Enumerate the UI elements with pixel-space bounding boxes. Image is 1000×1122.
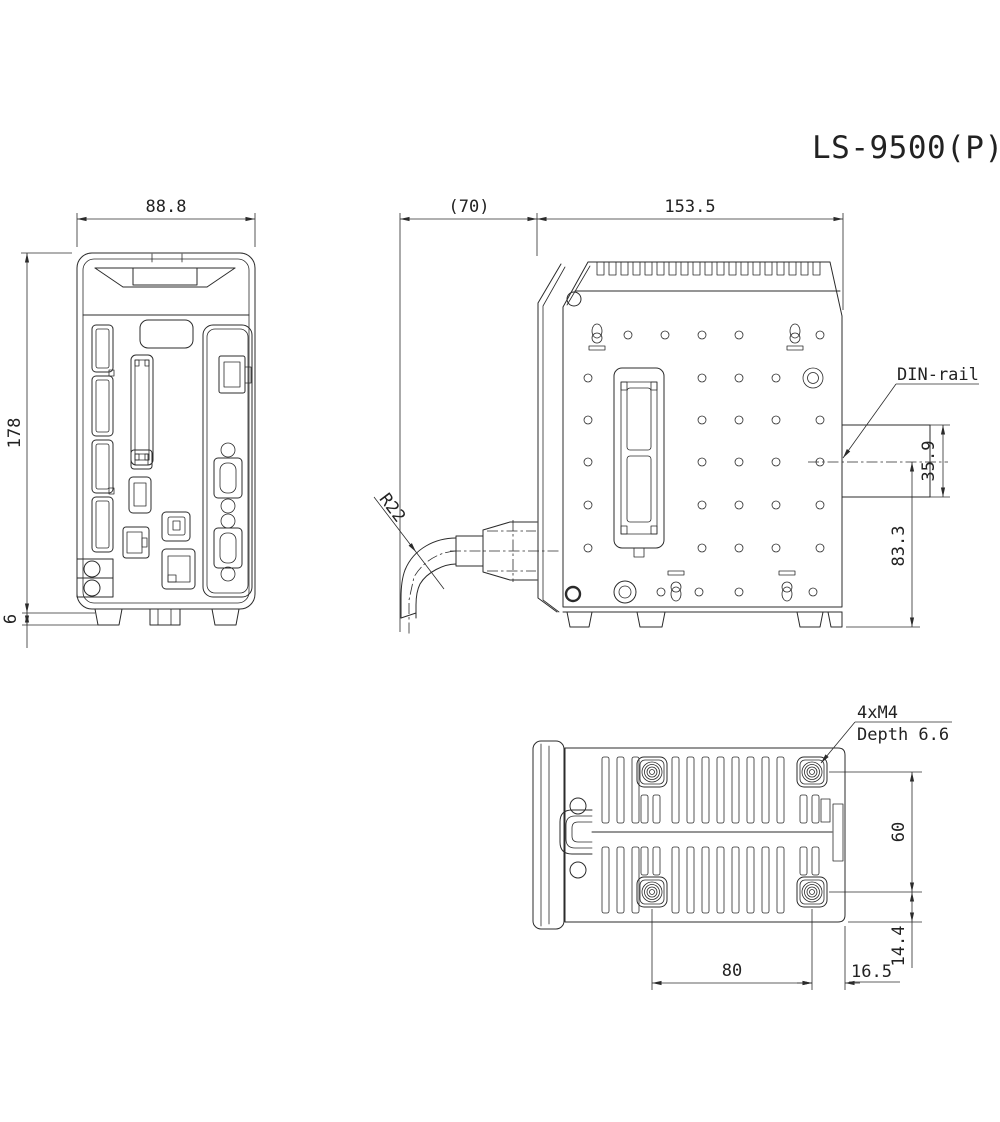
dim-front-width: 88.8 (146, 197, 187, 217)
dim-hole-to-bottom: 14.4 (889, 926, 909, 967)
front-expansion-slots (92, 325, 114, 552)
side-front-bezel (538, 264, 565, 612)
side-feet (563, 612, 842, 627)
connector-b (129, 477, 151, 513)
bottom-view: 4xM4 Depth 6.6 60 14.4 80 16.5 (533, 703, 952, 990)
mounting-hole (637, 757, 667, 787)
d-sub-connector-1 (214, 458, 242, 498)
dim-hole-span-vertical: 60 (889, 822, 909, 842)
side-screw-boss (614, 581, 636, 603)
label-din-rail: DIN-rail (897, 365, 979, 385)
front-view: 88.8 178 6 (1, 197, 255, 648)
dim-front-height: 178 (5, 418, 25, 449)
bottom-vent-slots (602, 757, 819, 913)
side-corner-hole-top-left (567, 292, 581, 306)
dim-hole-to-right: 16.5 (851, 962, 892, 982)
dim-din-center-to-bottom: 83.3 (889, 526, 909, 567)
front-body-outline (77, 253, 255, 609)
side-view: R22 DIN-rail (70) 153.5 35.9 83.3 (374, 197, 979, 636)
drawing-title: LS-9500(P) (812, 130, 1000, 166)
dim-foot-height: 6 (1, 614, 21, 624)
technical-drawing-page: LS-9500(P) (0, 0, 1000, 1122)
cable-radius-callout: R22 (374, 490, 444, 589)
front-body-inner-outline (83, 259, 249, 603)
mounting-hole-callout: 4xM4 Depth 6.6 (821, 703, 952, 763)
label-cable-bend-radius: R22 (375, 490, 409, 527)
dimension-drawing: LS-9500(P) (0, 0, 1000, 1122)
side-top-vents (575, 262, 840, 291)
side-vent-holes (584, 324, 824, 601)
cable-inner-curve (416, 564, 456, 618)
rj45-jack (219, 356, 245, 393)
label-hole-depth: Depth 6.6 (857, 725, 949, 745)
dim-din-rail-width: 35.9 (919, 441, 939, 482)
mounting-hole (797, 877, 827, 907)
front-terminal-block (77, 559, 113, 597)
front-center-connectors (123, 320, 195, 589)
d-sub-connector-2 (214, 528, 242, 568)
bottom-hole-left-1 (570, 798, 586, 814)
bottom-din-latch (560, 810, 832, 854)
side-corner-hole-bottom-left (566, 587, 580, 601)
dim-hole-span-horizontal: 80 (722, 961, 742, 981)
din-rail-callout: DIN-rail (843, 365, 979, 458)
main-connector (131, 355, 153, 465)
dim-cable-clearance: (70) (449, 197, 490, 217)
bottom-right-notch (821, 799, 830, 822)
cable-centerline (409, 551, 456, 636)
front-dimensions: 88.8 178 6 (1, 197, 255, 648)
vent-window (140, 320, 193, 348)
front-right-module (203, 325, 252, 597)
bottom-hole-left-2 (570, 862, 586, 878)
label-mounting-holes: 4xM4 (857, 703, 898, 723)
side-body-outline (563, 262, 842, 607)
side-din-slot (614, 368, 664, 557)
front-top-cap (83, 254, 249, 315)
bottom-dimensions: 60 14.4 80 16.5 (652, 772, 922, 990)
front-feet (95, 609, 239, 625)
dim-depth: 153.5 (664, 197, 715, 217)
sensor-head-cable (401, 520, 560, 636)
bottom-front-bezel (533, 741, 564, 929)
bottom-din-tab (833, 804, 843, 861)
usb-b-port (162, 512, 190, 541)
mounting-hole (637, 877, 667, 907)
